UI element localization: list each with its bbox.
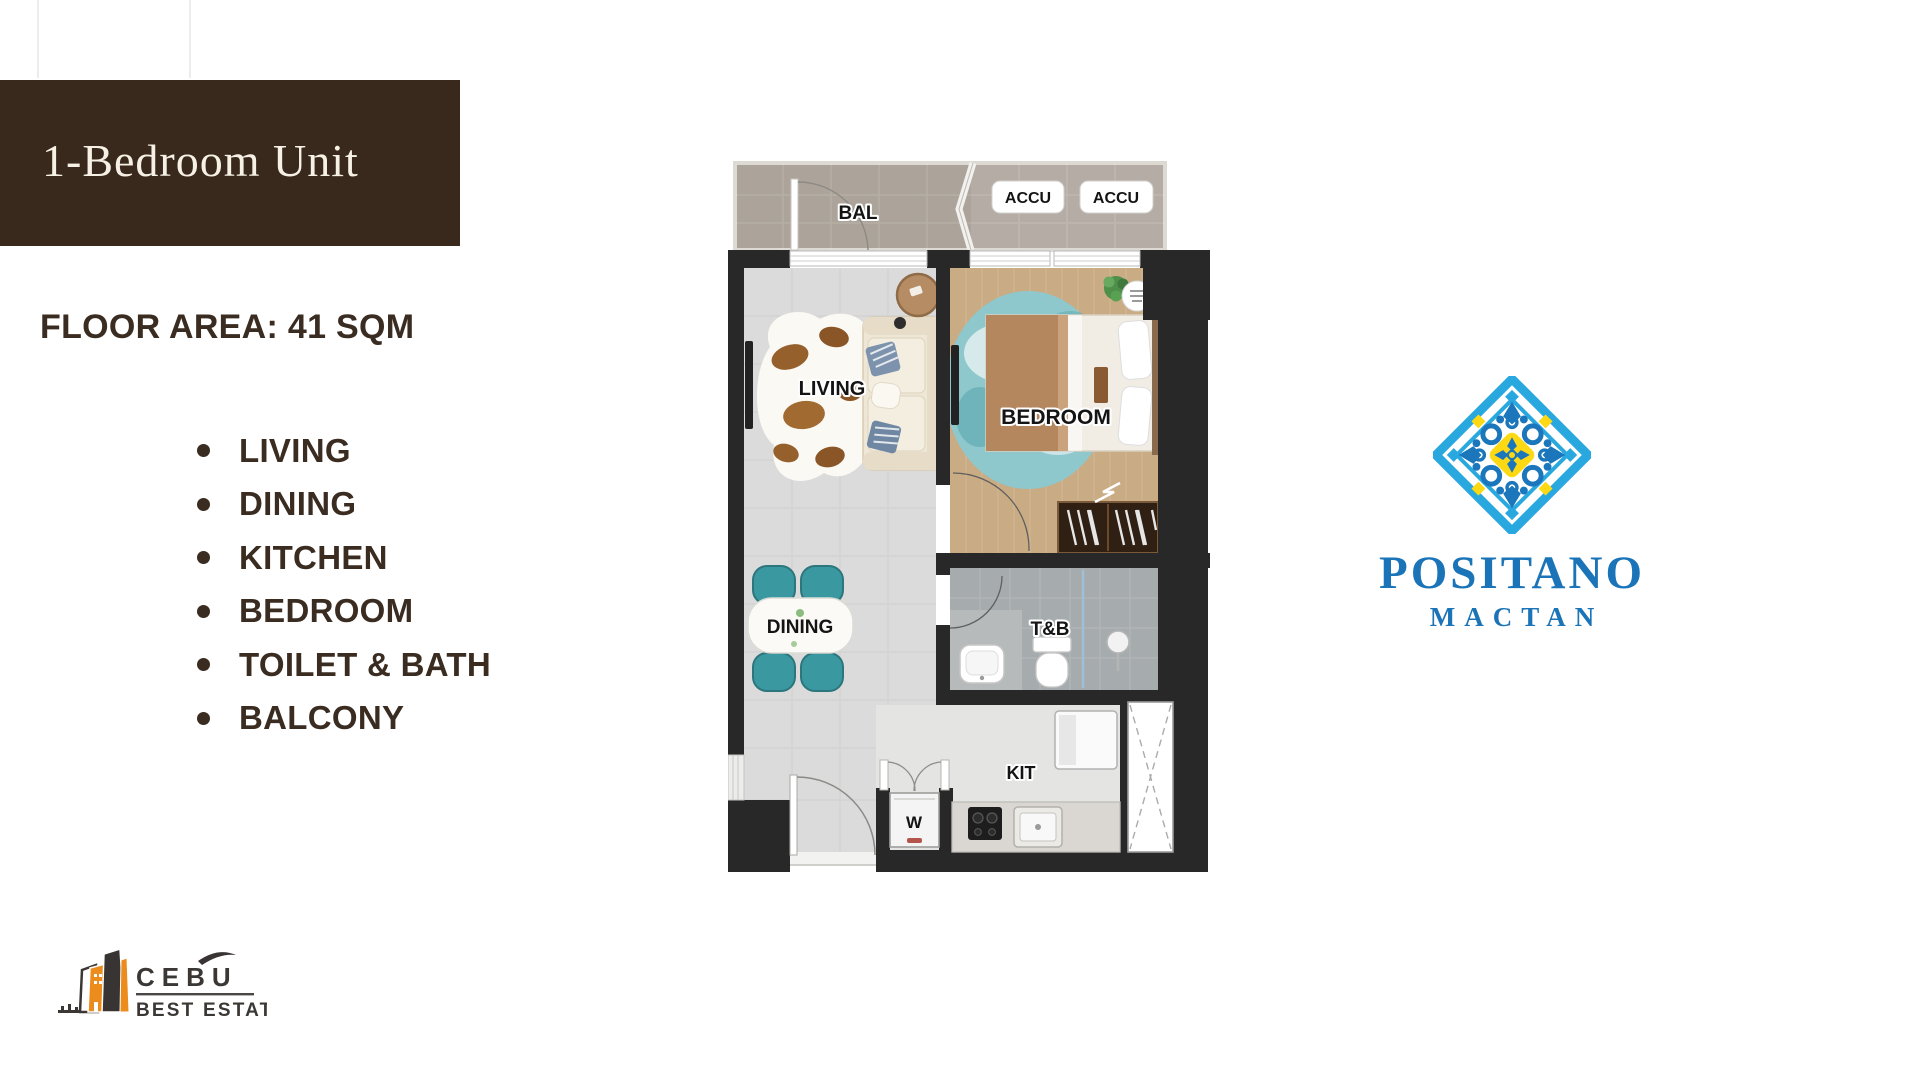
balcony-door	[791, 179, 798, 250]
list-item: DINING	[197, 478, 491, 532]
wardrobe	[1058, 502, 1158, 553]
kitchen-sink	[1014, 807, 1062, 847]
bedroom-tv	[951, 345, 959, 425]
bullet-icon	[197, 444, 210, 457]
dining-label: DINING	[767, 617, 834, 638]
bullet-icon	[197, 605, 210, 618]
feature-label: TOILET & BATH	[239, 646, 491, 684]
bullet-icon	[197, 551, 210, 564]
feature-list: LIVING DINING KITCHEN BEDROOM TOILET & B…	[197, 424, 491, 745]
side-window	[728, 755, 744, 800]
living-label: LIVING	[799, 378, 866, 400]
feature-label: BEDROOM	[239, 592, 413, 630]
floor-plan-drawing: BAL ACCU ACCU LIVING BEDROOM DINING T&B …	[728, 155, 1210, 872]
background-accent-line	[189, 0, 191, 78]
feature-label: DINING	[239, 485, 356, 523]
bullet-icon	[197, 712, 210, 725]
list-item: KITCHEN	[197, 531, 491, 585]
sofa	[863, 317, 943, 470]
balcony-label: BAL	[838, 203, 877, 224]
background-accent-line	[37, 0, 39, 78]
utility-shaft	[1128, 702, 1173, 852]
refrigerator	[1055, 711, 1117, 769]
bullet-icon	[197, 658, 210, 671]
double-door-leaf	[941, 760, 949, 790]
cebu-logo-graphic: CEBU BEST ESTATE	[52, 946, 267, 1034]
bed	[986, 311, 1159, 455]
cebu-tagline: BEST ESTATE	[136, 1000, 267, 1021]
list-item: LIVING	[197, 424, 491, 478]
page-title: 1-Bedroom Unit	[42, 134, 359, 187]
list-item: BALCONY	[197, 692, 491, 746]
bedroom-label: BEDROOM	[1001, 406, 1111, 429]
bullet-icon	[197, 498, 210, 511]
positano-name: POSITANO	[1379, 546, 1645, 600]
cebu-best-estate-logo: CEBU BEST ESTATE	[52, 946, 267, 1034]
feature-label: KITCHEN	[239, 539, 388, 577]
buildings-icon	[80, 949, 129, 1012]
coffee-table	[897, 274, 939, 316]
cooktop	[968, 807, 1002, 840]
kitchen-label: KIT	[1007, 763, 1036, 783]
accu-left-label: ACCU	[1005, 190, 1051, 207]
floor-plan: BAL ACCU ACCU LIVING BEDROOM DINING T&B …	[728, 155, 1210, 872]
positano-diamond-icon	[1433, 376, 1591, 534]
list-item: TOILET & BATH	[197, 638, 491, 692]
title-banner: 1-Bedroom Unit	[0, 80, 460, 246]
toilet-bath-label: T&B	[1030, 619, 1069, 640]
accu-right-label: ACCU	[1093, 190, 1139, 207]
feature-label: BALCONY	[239, 699, 404, 737]
floor-area-text: FLOOR AREA: 41 SQM	[40, 308, 414, 347]
positano-logo: POSITANO MACTAN	[1352, 376, 1672, 633]
list-item: BEDROOM	[197, 585, 491, 639]
living-tv	[745, 341, 753, 429]
toilet	[1033, 637, 1071, 687]
feature-label: LIVING	[239, 432, 351, 470]
bathroom-sink	[960, 645, 1004, 683]
washer-label: W	[906, 813, 923, 832]
cebu-name: CEBU	[136, 962, 238, 992]
double-door-leaf	[880, 760, 888, 790]
divider	[136, 993, 254, 995]
slide: { "slide": { "background": "#ffffff" }, …	[0, 0, 1920, 1080]
positano-location: MACTAN	[1421, 602, 1603, 633]
floor-lamp	[894, 317, 906, 329]
